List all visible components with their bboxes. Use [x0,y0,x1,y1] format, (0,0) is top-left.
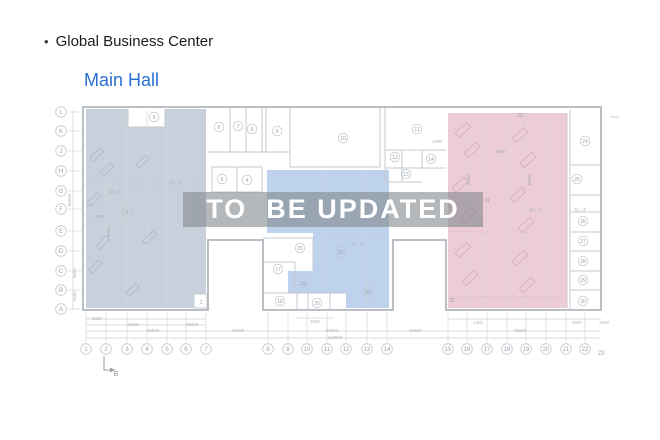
grid-row-label: H [59,169,63,175]
room-label: 2 [126,210,129,216]
grid-row-label: C [59,269,64,275]
grid-row-label: A [59,307,63,313]
dimension-label: 6000 [92,316,102,321]
room-label: 5 [221,177,224,183]
room-label: 4 [246,178,249,184]
dimension-label: 36000 [147,328,160,333]
annotation-label: Q = 3 [351,241,363,246]
grid-col-label: 8 [266,347,270,353]
grid-col-label: 4 [145,347,149,353]
grid-row-label: J [60,149,63,155]
room-label: 6 [218,125,221,131]
room-label: 31 [484,198,490,204]
annotation-label: 6000 [106,226,111,237]
annotation-label: 2693 [95,214,106,219]
dimension-label: 6000 [72,268,77,278]
grid-col-label: 2 [104,347,108,353]
room-label: 25 [574,177,580,183]
zone-middle [267,170,389,308]
room-label: 8 [251,127,254,133]
annotation-label: Q = 3 [529,207,541,212]
grid-col-label: 20 [543,347,550,353]
dimension-label: 18000 [127,322,140,327]
dimension-label: 6000 [572,320,582,325]
annotation-label: 1800 [495,149,506,154]
room-label: 18 [277,299,283,305]
annotation-label: 1300 [432,139,443,144]
dimension-label: 6000 [72,291,77,301]
room-label: 17 [275,267,281,273]
grid-col-labels: 1234567891011121314151617181920212223 [81,344,605,357]
room-label: 27 [580,239,586,245]
room-label: 14 [428,157,434,163]
grid-col-label: 19 [523,347,530,353]
grid-col-label: 9 [286,347,290,353]
grid-col-label: 12 [343,347,350,353]
annotation-label: Q = 3 [109,189,121,194]
dimension-label: 18000 [186,322,199,327]
annotation-label: 6000 [466,174,471,185]
grid-col-label: 10 [304,347,311,353]
dimension-label: 18000 [232,328,245,333]
grid-col-label: 13 [364,347,371,353]
room-label: 23 [517,113,523,119]
room-label: 9 [276,129,279,135]
grid-col-label: 7 [204,347,208,353]
grid-col-label: 23 [598,351,605,357]
grid-col-label: 3 [125,347,129,353]
room-label: 12 [392,155,398,161]
dimension-label: 2000 [310,319,320,324]
room-label: 26 [580,219,586,225]
grid-row-label: G [59,189,64,195]
watermark-overlay: TO BE UPDATED [183,192,483,227]
room-label: 32 [449,298,455,304]
grid-row-labels: LKJHGFEDCBA [56,107,67,315]
grid-col-label: 16 [464,347,471,353]
grid-col-label: 11 [324,347,331,353]
room-label: 10 [340,136,346,142]
grid-col-label: 18 [504,347,511,353]
room-label: 1 [200,300,203,306]
room-label: 7 [237,124,240,130]
grid-row-label: D [59,249,64,255]
grid-col-label: 17 [484,347,491,353]
annotation-label: 6000 [527,174,532,185]
room-label: 28 [580,259,586,265]
screen: • Global Business Center Main Hall [0,0,660,440]
room-label: 29 [580,278,586,284]
room-label: 15 [297,246,303,252]
grid-row-label: E [59,229,63,235]
dimension-label: 18400 [409,328,422,333]
dimension-label: 1300 [473,320,483,325]
grid-col-label: 14 [384,347,391,353]
grid-row-label: B [59,288,63,294]
room-label: 11 [414,127,419,133]
grid-col-label: 5 [165,347,169,353]
room-label: 19 [300,281,306,287]
room-label: 21 [338,250,344,256]
grid-row-label: L [59,110,63,116]
annotation-label: Q = 3 [169,180,181,185]
grid-col-label: 6 [184,347,188,353]
dimension-label: 36000 [326,328,339,333]
section-marker: B [104,356,119,378]
room-label: 24 [582,139,588,145]
room-label: 20 [314,301,320,307]
section-marker-label: B [114,371,119,378]
grid-col-label: 21 [563,347,570,353]
room-label: 30 [580,299,586,305]
annotation-label: Q = 3 [574,207,586,212]
room-label: 22 [365,290,371,296]
dimension-label: 3000 [599,320,609,325]
room-label: 3 [153,115,156,121]
dimension-label: 45000 [514,328,527,333]
dimension-label: 60000 [67,193,72,206]
grid-row-label: F [59,207,63,213]
grid-col-label: 22 [582,347,589,353]
grid-col-label: 1 [84,347,88,353]
grid-col-label: 15 [445,347,452,353]
grid-row-label: K [59,129,63,135]
dimension-label: 153600 [328,335,343,340]
room-label: 13 [403,172,409,178]
